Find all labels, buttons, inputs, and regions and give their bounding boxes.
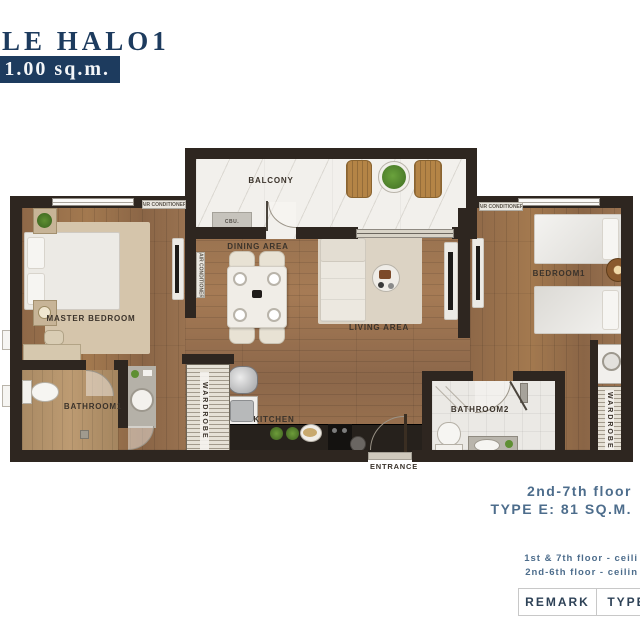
- fridge: [228, 366, 258, 394]
- wall: [412, 450, 633, 462]
- stool: [44, 330, 64, 345]
- burner-icon: [342, 428, 347, 433]
- tv-icon: [476, 246, 480, 300]
- remark-table-cell-remark: REMARK: [519, 589, 597, 615]
- room-label-bedroom1: BEDROOM1: [527, 269, 591, 279]
- cup-icon: [378, 282, 384, 288]
- burner-icon: [332, 428, 337, 433]
- wall: [185, 148, 477, 159]
- plant-icon: [382, 165, 406, 189]
- sink-basin: [602, 352, 621, 371]
- sliding-door: [356, 229, 454, 238]
- wall: [185, 208, 196, 318]
- wall: [10, 196, 22, 462]
- room-label-master-bedroom: MASTER BEDROOM: [40, 314, 142, 324]
- door-leaf: [266, 201, 268, 231]
- remark-note-1: 1st & 7th floor - ceili: [338, 553, 638, 564]
- plant-icon: [37, 213, 52, 228]
- wall: [590, 340, 598, 450]
- entrance-door-leaf: [404, 414, 407, 452]
- wall: [555, 371, 565, 450]
- tv-icon: [175, 245, 179, 293]
- room-label-bathroom1: BATHROOM1: [54, 402, 132, 412]
- plate-icon: [233, 272, 247, 286]
- unit-type-text: TYPE E: 81 SQ.M.: [332, 501, 632, 517]
- air-conditioner-badge: AIR CONDITIONER: [196, 252, 205, 298]
- sink-basin: [130, 388, 154, 412]
- shelf-item: [142, 369, 153, 377]
- window: [518, 198, 600, 206]
- sofa-chaise: [320, 238, 366, 262]
- soap-icon: [505, 440, 513, 448]
- wardrobe-label: WARDROBE: [200, 372, 209, 450]
- room-label-bathroom2: BATHROOM2: [446, 405, 514, 415]
- plate-icon: [267, 272, 281, 286]
- floor-range-text: 2nd-7th floor: [332, 483, 632, 499]
- balcony-chair: [346, 160, 372, 198]
- pillow: [602, 218, 619, 260]
- balcony-chair: [414, 160, 442, 198]
- toilet: [437, 422, 461, 446]
- wall: [10, 450, 368, 462]
- food-icon: [303, 428, 317, 437]
- wall: [621, 196, 633, 462]
- wall: [182, 354, 234, 364]
- wall: [458, 208, 470, 338]
- area-badge: 1.00 sq.m.: [0, 56, 120, 83]
- air-conditioner-badge: AIR CONDITIONER: [479, 202, 523, 211]
- remark-table-cell-type: TYPE: [597, 589, 640, 615]
- project-title: LE HALO1: [2, 26, 170, 57]
- remark-note-2: 2nd-6th floor - ceilin: [338, 567, 638, 578]
- wall: [22, 360, 86, 370]
- vegetable-icon: [270, 427, 283, 440]
- room-label-living: LIVING AREA: [342, 323, 416, 333]
- remark-table: REMARK TYPE: [518, 588, 640, 616]
- plate-icon: [267, 308, 281, 322]
- vegetable-icon: [286, 427, 299, 440]
- entrance-label: ENTRANCE: [366, 462, 422, 471]
- wall: [118, 362, 128, 428]
- door-gap: [266, 227, 296, 239]
- room-label-kitchen: KITCHEN: [250, 415, 298, 425]
- room-label-dining: DINING AREA: [219, 242, 297, 252]
- wall: [422, 371, 432, 450]
- cup-icon: [388, 283, 394, 289]
- wall: [296, 227, 358, 239]
- air-conditioner-badge: AIR CONDITIONER: [142, 200, 186, 209]
- toilet: [31, 382, 59, 402]
- room-label-balcony: BALCONY: [236, 176, 306, 186]
- floor-drain: [80, 430, 89, 439]
- entrance-threshold: [368, 452, 412, 460]
- condiment-tray: [252, 290, 262, 298]
- cbu-label: CBU.: [213, 219, 251, 225]
- tv-icon: [448, 252, 453, 310]
- soap-icon: [131, 370, 139, 378]
- floorplan-page: { "header": { "project_name": "LE HALO1"…: [0, 0, 640, 640]
- plate-icon: [233, 308, 247, 322]
- window: [52, 198, 134, 206]
- pillow: [27, 237, 45, 269]
- wall: [185, 227, 266, 239]
- tray-icon: [379, 270, 391, 279]
- pillow: [602, 290, 619, 330]
- wardrobe-label: WARDROBE: [605, 390, 614, 452]
